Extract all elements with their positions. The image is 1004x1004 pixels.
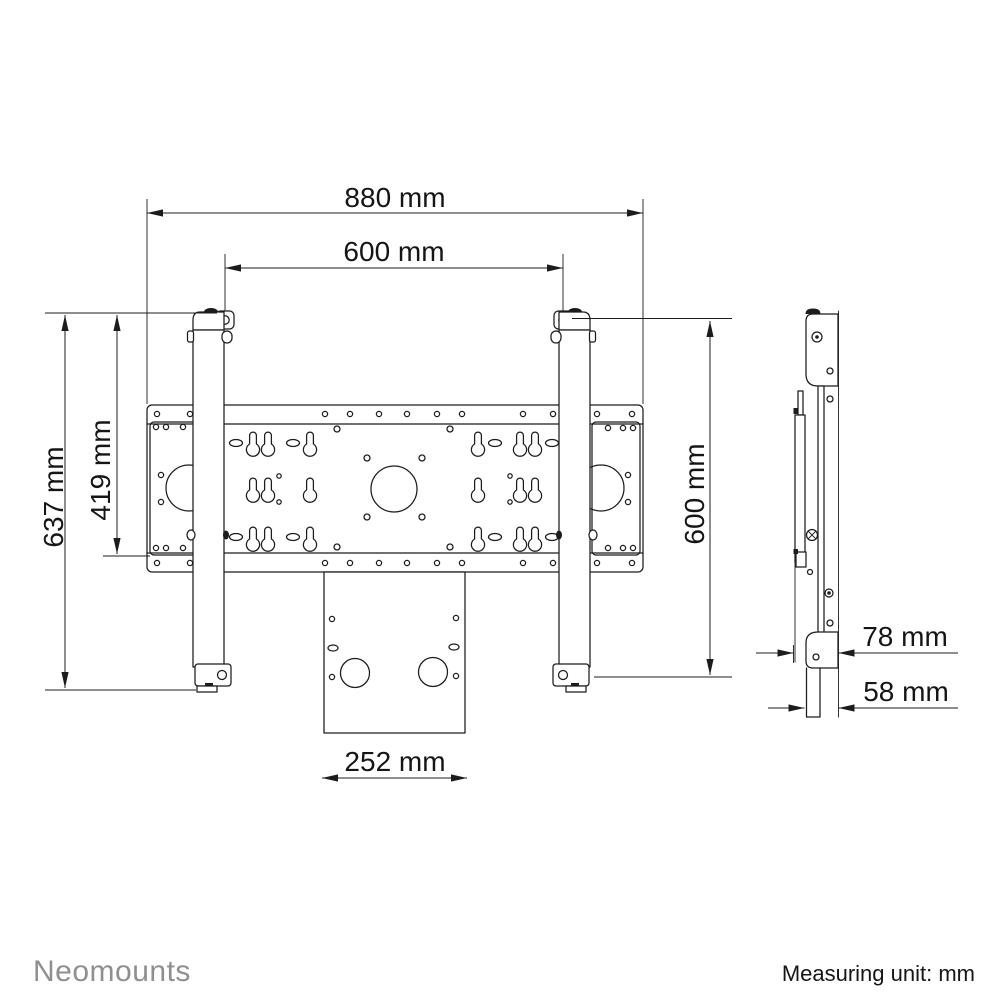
keyhole-slot [471,478,484,502]
keyhole-slot [513,432,526,456]
pilot-hole [508,500,512,504]
endcap-hole [163,545,168,550]
keyhole-slot [528,478,541,502]
right-vesa-rail [551,308,597,692]
rail-hook-right [568,308,582,312]
dim-overall-width: 880 mm [344,182,445,213]
flange-hole [594,560,599,565]
endcap-hole [625,472,630,477]
flange-hole [154,560,159,565]
endcap-hole [158,499,163,504]
flange-hole [629,560,634,565]
endcap-hole [630,545,635,550]
keyhole-slot [471,527,484,551]
brand-logo: Neomounts [33,955,191,989]
dim-bottom-bracket-width: 252 mm [344,746,445,777]
center-cable-hole [371,466,417,512]
pilot-hole [508,474,512,478]
endcap-hole [630,425,635,430]
keyhole-slot [246,432,259,456]
flange-hole [376,560,381,565]
keyhole-slot [261,478,274,502]
flange-hole [347,411,352,416]
side-bottom-foot [807,668,821,717]
dim-overall-height-right: 600 mm [679,443,710,544]
flange-hole [550,411,555,416]
flange-hole [404,560,409,565]
face-hole [419,455,425,461]
flange-hole [434,560,439,565]
keyhole-slot [513,527,526,551]
keyhole-slot [246,478,259,502]
measuring-unit-note: Measuring unit: mm [782,961,975,987]
flange-hole [434,411,439,416]
face-hole [334,426,340,432]
rail-hook-left [204,308,218,312]
flange-hole [187,560,192,565]
face-hole [334,544,340,550]
flange-hole [520,411,525,416]
keyhole-slot [303,478,316,502]
endcap-hole [620,545,625,550]
bottom-bracket [324,572,465,733]
flange-hole [520,560,525,565]
flange-hole [629,411,634,416]
flange-hole [322,560,327,565]
keyhole-slot [528,527,541,551]
endcap-hole [605,425,610,430]
endcap-hole [625,499,630,504]
endcap-hole [153,424,158,429]
display-bracket-profile [795,415,805,562]
oval-slot [230,440,243,447]
side-view-drawing [794,309,839,718]
left-vesa-rail [187,308,234,692]
oval-slot [546,440,559,447]
flange-hole [459,560,464,565]
side-profile [794,309,839,718]
face-hole [364,455,370,461]
flange-hole [594,411,599,416]
keyhole-slot [303,432,316,456]
dim-depth-to-wall: 78 mm [862,621,948,652]
face-hole [447,544,453,550]
oval-slot [489,440,502,447]
keyhole-slot [471,432,484,456]
keyhole-slot [261,527,274,551]
face-hole [419,514,425,520]
keyhole-slot [528,432,541,456]
oval-slot [287,440,300,447]
front-view-drawing [147,308,643,733]
flange-hole [322,411,327,416]
side-top-hook [806,309,821,315]
endcap-hole [605,545,610,550]
technical-drawing-page: 880 mm 600 mm 637 mm 419 mm 600 mm 252 m… [0,0,1004,1004]
face-hole [364,514,370,520]
oval-slot [230,534,243,541]
keyhole-slot [261,432,274,456]
pilot-hole [277,500,281,504]
dim-hole-pattern-width: 600 mm [343,236,444,267]
dim-profile-depth: 58 mm [863,676,949,707]
endcap-hole [620,425,625,430]
keyhole-slot [513,478,526,502]
pilot-hole [277,474,281,478]
flange-hole [154,411,159,416]
keyhole-slot [303,527,316,551]
endcap-hole [158,472,163,477]
flange-hole [404,411,409,416]
flange-hole [459,411,464,416]
oval-slot [489,534,502,541]
flange-hole [187,411,192,416]
dim-overall-height-left: 637 mm [38,446,69,547]
flange-hole [550,560,555,565]
endcap-hole [163,424,168,429]
endcap-hole [180,424,185,429]
endcap-hole [180,545,185,550]
flange-hole [347,560,352,565]
keyhole-slot [246,527,259,551]
endcap-hole [153,545,158,550]
face-hole [447,426,453,432]
dim-inner-height-left: 419 mm [85,419,116,520]
flange-hole [376,411,381,416]
wall-mount-technical-drawing: 880 mm 600 mm 637 mm 419 mm 600 mm 252 m… [0,0,1004,1004]
oval-slot [287,534,300,541]
